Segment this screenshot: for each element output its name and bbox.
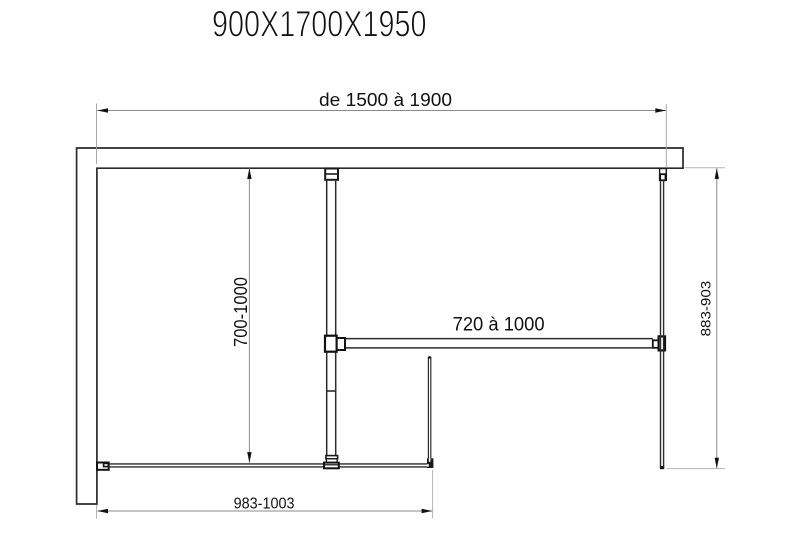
svg-text:900X1700X1950: 900X1700X1950: [212, 4, 427, 45]
svg-text:983-1003: 983-1003: [234, 496, 295, 513]
svg-text:de 1500 à 1900: de 1500 à 1900: [319, 90, 452, 110]
svg-text:883-903: 883-903: [698, 281, 714, 337]
svg-text:720 à 1000: 720 à 1000: [453, 315, 545, 336]
svg-text:700-1000: 700-1000: [231, 277, 251, 347]
